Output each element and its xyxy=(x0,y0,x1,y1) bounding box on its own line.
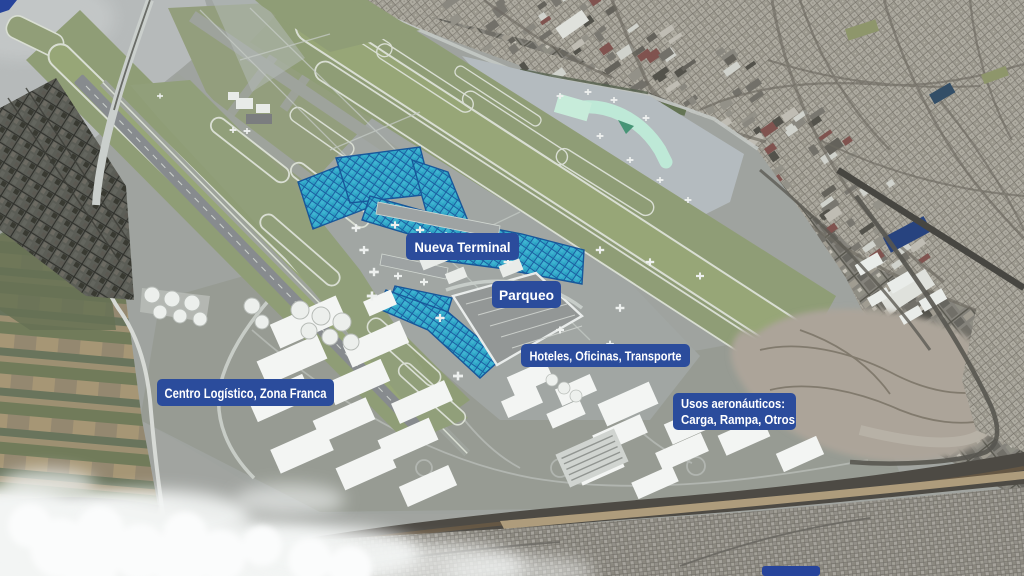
svg-text:Hoteles, Oficinas, Transporte: Hoteles, Oficinas, Transporte xyxy=(530,349,682,364)
svg-text:Nueva Terminal: Nueva Terminal xyxy=(415,239,511,255)
svg-text:Carga, Rampa, Otros: Carga, Rampa, Otros xyxy=(681,413,795,427)
svg-text:Usos aeronáuticos:: Usos aeronáuticos: xyxy=(681,397,785,411)
svg-text:Centro Logístico, Zona Franca: Centro Logístico, Zona Franca xyxy=(165,385,327,401)
svg-text:Parqueo: Parqueo xyxy=(499,287,554,303)
